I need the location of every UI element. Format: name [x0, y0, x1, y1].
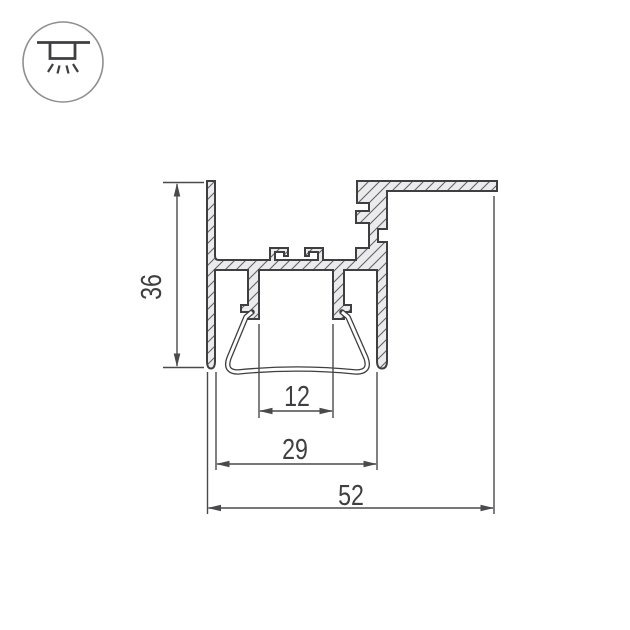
arrow-left — [208, 505, 222, 512]
profile-body — [207, 181, 497, 369]
technical-drawing: 36 12 29 52 — [0, 0, 630, 630]
arrow-left — [259, 408, 273, 415]
extension-lines — [208, 196, 495, 514]
dimension-overall-width: 52 — [208, 196, 495, 514]
drawing-canvas: 36 12 29 52 — [0, 0, 630, 630]
arrow-right — [481, 505, 495, 512]
dimension-label-slot: 12 — [284, 379, 310, 412]
arrow-up — [174, 183, 181, 197]
dimension-label-opening: 29 — [282, 432, 308, 465]
lens-outline-inner — [228, 312, 368, 372]
arrow-right — [320, 408, 334, 415]
icon-circle — [23, 22, 103, 102]
diffuser-lens — [228, 312, 368, 372]
arrow-down — [174, 354, 181, 368]
lens-outline-outer — [228, 312, 368, 372]
dimension-label-overall: 52 — [338, 478, 364, 511]
extension-lines — [163, 183, 204, 368]
profile-section-path — [207, 181, 497, 369]
dimension-height: 36 — [134, 183, 204, 368]
dimension-label-height: 36 — [134, 274, 167, 300]
arrow-left — [216, 461, 230, 468]
recessed-downlight-icon — [23, 22, 103, 102]
arrow-right — [364, 461, 378, 468]
